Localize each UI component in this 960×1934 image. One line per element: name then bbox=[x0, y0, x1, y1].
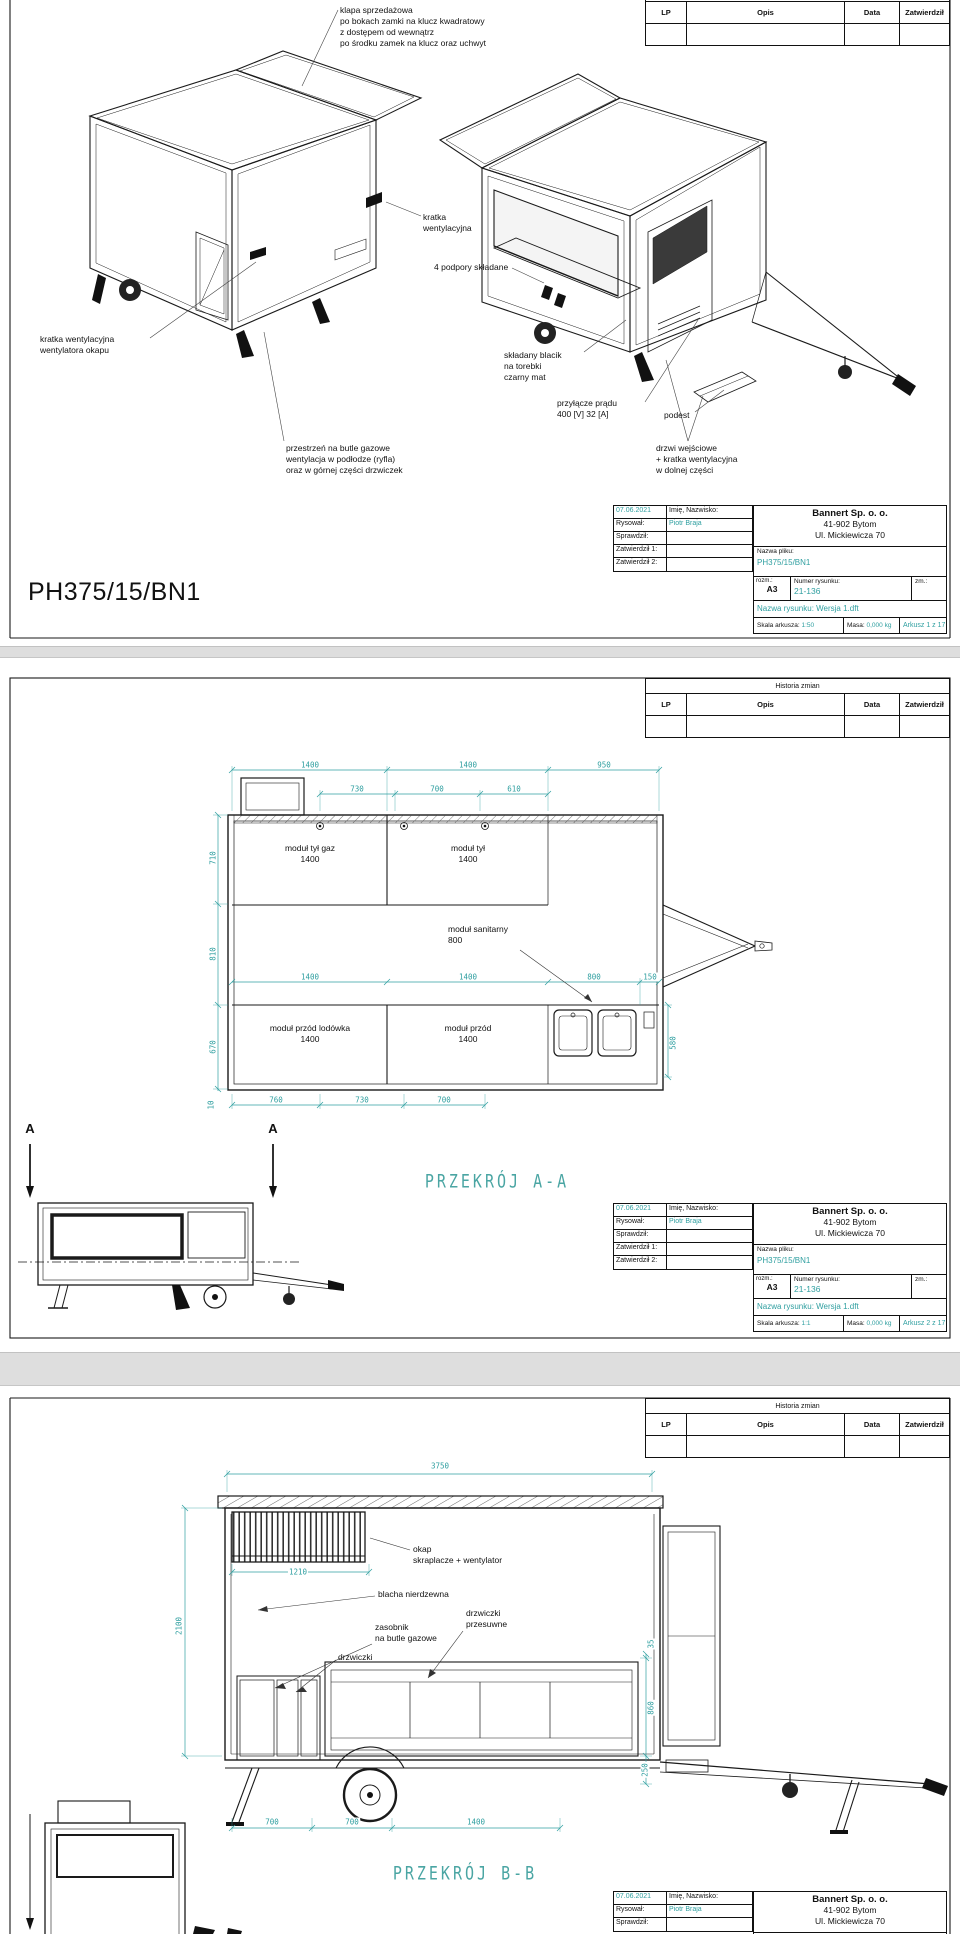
annotation-drzwi-wejsciowe: drzwi wejściowe + kratka wentylacyjna w … bbox=[656, 443, 738, 476]
column-header-data: Data bbox=[845, 694, 900, 715]
column-header-opis: Opis bbox=[687, 694, 845, 715]
revision-empty-row bbox=[645, 716, 950, 738]
mass-label: Masa: bbox=[847, 1320, 865, 1327]
company-name: Bannert Sp. o. o. bbox=[754, 508, 946, 519]
file-label: Nazwa pliku: bbox=[757, 548, 943, 555]
column-header-lp: LP bbox=[646, 1414, 687, 1435]
annotation-podpory: 4 podpory składane bbox=[434, 262, 508, 273]
sheet-3: Historia zmian LP Opis Data Zatwierdził … bbox=[0, 1386, 960, 1934]
annotation-podest: podest bbox=[664, 410, 690, 421]
size-label: rozm.: bbox=[754, 577, 790, 584]
name-header: Imię, Nazwisko: bbox=[667, 1204, 752, 1216]
annotation-kratka-okapu: kratka wentylacyjna wentylatora okapu bbox=[40, 334, 114, 356]
scale-label: Skala arkusza: bbox=[757, 622, 800, 629]
company-addr1: 41-902 Bytom bbox=[754, 519, 946, 530]
company-box: Bannert Sp. o. o. 41-902 Bytom Ul. Micki… bbox=[753, 505, 947, 547]
column-header-opis: Opis bbox=[687, 1414, 845, 1435]
zatwierdzil2-label: Zatwierdził 2: bbox=[614, 558, 667, 571]
annotation-klapa-sprzedazowa: klapa sprzedażowa po bokach zamki na klu… bbox=[340, 5, 486, 49]
scale-label: Skala arkusza: bbox=[757, 1320, 800, 1327]
company-addr1: 41-902 Bytom bbox=[754, 1217, 946, 1228]
dimension: 1210 bbox=[288, 1568, 308, 1577]
dimension: 580 bbox=[669, 1035, 678, 1051]
dimension: 700 bbox=[344, 1818, 360, 1827]
title-block: 07.06.2021Imię, Nazwisko: Rysował:Piotr … bbox=[613, 1203, 947, 1333]
title-block: 07.06.2021Imię, Nazwisko: Rysował:Piotr … bbox=[613, 505, 947, 635]
title-block-main: Bannert Sp. o. o. 41-902 Bytom Ul. Micki… bbox=[753, 505, 947, 634]
dimension: 610 bbox=[506, 785, 522, 794]
revision-header-row: LP Opis Data Zatwierdził bbox=[645, 1414, 950, 1436]
size-value: A3 bbox=[754, 1282, 790, 1292]
module-przod-lodowka: moduł przód lodówka 1400 bbox=[270, 1023, 350, 1046]
section-title-b-b: PRZEKRÓJ B-B bbox=[393, 1862, 537, 1885]
dimension: 670 bbox=[209, 1039, 218, 1055]
file-label: Nazwa pliku: bbox=[757, 1246, 943, 1253]
dimension: 35 bbox=[647, 1638, 656, 1649]
sprawdzil-label: Sprawdził: bbox=[614, 1918, 667, 1931]
annotation-drzwiczki: drzwiczki bbox=[338, 1652, 372, 1663]
annotation-kratka-wentylacyjna: kratka wentylacyjna bbox=[423, 212, 472, 234]
dimension: 760 bbox=[268, 1096, 284, 1105]
section-title-a-a: PRZEKRÓJ A-A bbox=[425, 1170, 569, 1193]
annotation-blacik: składany blacik na torebki czarny mat bbox=[504, 350, 562, 383]
module-przod: moduł przód 1400 bbox=[445, 1023, 492, 1046]
annotation-blacha: blacha nierdzewna bbox=[378, 1589, 449, 1600]
revision-table: Historia zmian LP Opis Data Zatwierdził bbox=[645, 1398, 950, 1458]
dimension: 1400 bbox=[458, 973, 478, 982]
size-value: A3 bbox=[754, 584, 790, 594]
revision-table: Historia zmian LP Opis Data Zatwierdził bbox=[645, 678, 950, 738]
drawing-name: Nazwa rysunku: Wersja 1.dft bbox=[753, 601, 947, 618]
bottom-row: Skala arkusza: 1:50 Masa: 0,000 kg Arkus… bbox=[753, 618, 947, 634]
dimension: 730 bbox=[354, 1096, 370, 1105]
number-value: 21-136 bbox=[794, 1283, 908, 1294]
page-gap bbox=[0, 646, 960, 658]
part-code: PH375/15/BN1 bbox=[28, 578, 201, 607]
rysowal-label: Rysował: bbox=[614, 1905, 667, 1917]
drawing-date: 07.06.2021 bbox=[614, 1892, 667, 1904]
cad-document: { "colors": { "accent_teal": "#2f9fa0", … bbox=[0, 0, 960, 1934]
column-header-zatwierdzil: Zatwierdził bbox=[900, 2, 949, 23]
company-addr2: Ul. Mickiewicza 70 bbox=[754, 1228, 946, 1239]
sprawdzil-label: Sprawdził: bbox=[614, 532, 667, 544]
sheet-number: Arkusz 1 z 17 bbox=[900, 618, 946, 633]
rysowal-label: Rysował: bbox=[614, 519, 667, 531]
module-sanitarny: moduł sanitarny 800 bbox=[448, 924, 508, 946]
title-block-signatures: 07.06.2021Imię, Nazwisko: Rysował:Piotr … bbox=[613, 505, 753, 572]
dimension: 810 bbox=[209, 946, 218, 962]
sheet-2: Historia zmian LP Opis Data Zatwierdził … bbox=[0, 658, 960, 1352]
column-header-zatwierdzil: Zatwierdził bbox=[900, 1414, 949, 1435]
dimension: 1400 bbox=[300, 973, 320, 982]
column-header-lp: LP bbox=[646, 2, 687, 23]
dimension: 1400 bbox=[458, 761, 478, 770]
rysowal-label: Rysował: bbox=[614, 1217, 667, 1229]
page-gap bbox=[0, 1352, 960, 1386]
dimension: 950 bbox=[596, 761, 612, 770]
dimension: 700 bbox=[264, 1818, 280, 1827]
number-value: 21-136 bbox=[794, 585, 908, 596]
module-tyl-gaz: moduł tył gaz 1400 bbox=[285, 843, 335, 866]
rysowal-value: Piotr Braja bbox=[667, 1217, 752, 1229]
section-marker-a: A bbox=[268, 1121, 277, 1136]
number-label: Numer rysunku: bbox=[794, 578, 908, 585]
annotation-przylacze-pradu: przyłącze prądu 400 [V] 32 [A] bbox=[557, 398, 617, 420]
sprawdzil-label: Sprawdził: bbox=[614, 1230, 667, 1242]
section-marker-a: A bbox=[25, 1121, 34, 1136]
annotation-przestrzen-butle: przestrzeń na butle gazowe wentylacja w … bbox=[286, 443, 403, 476]
drawing-date: 07.06.2021 bbox=[614, 1204, 667, 1216]
sheet-number: Arkusz 2 z 17 bbox=[900, 1316, 946, 1331]
column-header-lp: LP bbox=[646, 694, 687, 715]
zatwierdzil2-label: Zatwierdził 2: bbox=[614, 1256, 667, 1269]
revision-empty-row bbox=[645, 1436, 950, 1458]
number-label: Numer rysunku: bbox=[794, 1276, 908, 1283]
mass-label: Masa: bbox=[847, 622, 865, 629]
dimension: 710 bbox=[209, 850, 218, 866]
title-block: 07.06.2021Imię, Nazwisko: Rysował:Piotr … bbox=[613, 1891, 947, 1934]
zm-label: zm.: bbox=[912, 577, 946, 600]
file-value: PH375/15/BN1 bbox=[757, 555, 943, 567]
column-header-data: Data bbox=[845, 2, 900, 23]
zm-label: zm.: bbox=[912, 1275, 946, 1298]
company-addr2: Ul. Mickiewicza 70 bbox=[754, 1916, 946, 1927]
dimension: 1400 bbox=[466, 1818, 486, 1827]
size-label: rozm.: bbox=[754, 1275, 790, 1282]
company-addr1: 41-902 Bytom bbox=[754, 1905, 946, 1916]
revision-title: Historia zmian bbox=[645, 678, 950, 694]
dimension: 3750 bbox=[430, 1462, 450, 1471]
revision-table: Historia zmian LP Opis Data Zatwierdził bbox=[645, 0, 950, 46]
dimension: 800 bbox=[586, 973, 602, 982]
annotation-drzwiczki-przesuwne: drzwiczki przesuwne bbox=[466, 1608, 507, 1630]
dimension: 150 bbox=[642, 973, 658, 982]
name-header: Imię, Nazwisko: bbox=[667, 1892, 752, 1904]
revision-empty-row bbox=[645, 24, 950, 46]
revision-header-row: LP Opis Data Zatwierdził bbox=[645, 694, 950, 716]
dimension: 1400 bbox=[300, 761, 320, 770]
dimension: 2100 bbox=[175, 1616, 184, 1636]
rysowal-value: Piotr Braja bbox=[667, 1905, 752, 1917]
name-header: Imię, Nazwisko: bbox=[667, 506, 752, 518]
company-addr2: Ul. Mickiewicza 70 bbox=[754, 530, 946, 541]
size-row: rozm.:A3 Numer rysunku:21-136 zm.: bbox=[753, 577, 947, 601]
file-value: PH375/15/BN1 bbox=[757, 1253, 943, 1265]
column-header-opis: Opis bbox=[687, 2, 845, 23]
mass-value: 0,000 kg bbox=[867, 1320, 892, 1327]
dimension: 250 bbox=[641, 1762, 650, 1778]
rysowal-value: Piotr Braja bbox=[667, 519, 752, 531]
zatwierdzil1-label: Zatwierdził 1: bbox=[614, 545, 667, 557]
sheet-1: Historia zmian LP Opis Data Zatwierdził … bbox=[0, 0, 960, 646]
scale-value: 1:50 bbox=[801, 622, 814, 629]
column-header-data: Data bbox=[845, 1414, 900, 1435]
company-name: Bannert Sp. o. o. bbox=[754, 1894, 946, 1905]
dimension: 730 bbox=[349, 785, 365, 794]
column-header-zatwierdzil: Zatwierdził bbox=[900, 694, 949, 715]
drawing-name: Nazwa rysunku: Wersja 1.dft bbox=[753, 1299, 947, 1316]
dimension: 860 bbox=[647, 1700, 656, 1716]
company-name: Bannert Sp. o. o. bbox=[754, 1206, 946, 1217]
mass-value: 0,000 kg bbox=[867, 622, 892, 629]
annotation-zasobnik: zasobnik na butle gazowe bbox=[375, 1622, 437, 1644]
drawing-date: 07.06.2021 bbox=[614, 506, 667, 518]
sheet3-line-art bbox=[0, 1386, 960, 1934]
dimension: 700 bbox=[436, 1096, 452, 1105]
file-box: Nazwa pliku: PH375/15/BN1 bbox=[753, 547, 947, 577]
dimension: 10 bbox=[207, 1099, 216, 1110]
module-tyl: moduł tył 1400 bbox=[451, 843, 485, 866]
scale-value: 1:1 bbox=[801, 1320, 810, 1327]
annotation-okap: okap skraplacze + wentylator bbox=[413, 1544, 502, 1566]
zatwierdzil1-label: Zatwierdził 1: bbox=[614, 1243, 667, 1255]
revision-header-row: LP Opis Data Zatwierdził bbox=[645, 2, 950, 24]
dimension: 700 bbox=[429, 785, 445, 794]
revision-title: Historia zmian bbox=[645, 1398, 950, 1414]
